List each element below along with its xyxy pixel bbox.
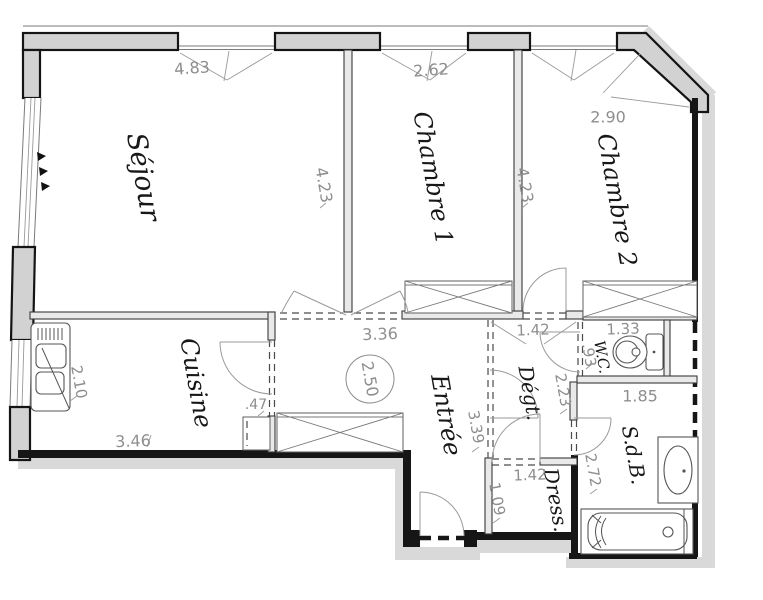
dim-sejour-width: 4.83 [174, 57, 211, 78]
wall-corridor-north [566, 311, 583, 319]
window-top-2 [380, 33, 468, 50]
window-top-1 [178, 33, 275, 50]
floor-plan-drawing: 2.50 Séjour Chambre 1 Chambre 2 Cuisine … [0, 0, 763, 600]
ceiling-height-badge: 2.50 [346, 355, 394, 403]
dim-sejour-height: 4.23 [312, 166, 337, 204]
wall-cuisine-east-stub [268, 312, 275, 340]
room-label-sejour: Séjour [120, 130, 166, 225]
exterior-walls-top [23, 26, 708, 112]
wall-sdb-left-lower [571, 455, 578, 557]
bathtub-icon [581, 509, 693, 554]
door-dress [492, 414, 540, 462]
dim-wc-height: .93 [578, 342, 600, 369]
wall-corner-leg [23, 50, 40, 98]
closet-entree-icon [277, 413, 403, 452]
window-left-1 [18, 98, 41, 247]
entry-door-stub [411, 530, 420, 547]
room-label-degt: Dégt. [513, 363, 546, 422]
dim-chambre1-width: 2.62 [413, 59, 450, 80]
dim-sdb-width: 1.85 [622, 387, 658, 406]
closet-chambre1-icon [405, 281, 512, 313]
wall-dress-north [540, 458, 577, 465]
toilet-icon [613, 334, 663, 370]
washbasin-icon [658, 437, 698, 503]
wall-entry-west [403, 452, 411, 547]
room-label-sdb: S.d.B. [617, 424, 651, 487]
window-left-2 [10, 340, 32, 407]
wall-wc-shaft [664, 320, 670, 378]
dim-hall-width: 3.36 [362, 324, 398, 344]
wall-pier [468, 33, 530, 50]
room-label-chambre2: Chambre 2 [592, 131, 643, 269]
wall-pier [23, 33, 178, 50]
door-sejour [281, 291, 346, 315]
dim-degt-width: 1.42 [516, 320, 550, 339]
closet-chambre2-icon [583, 281, 697, 317]
room-label-entree: Entrée [425, 371, 467, 458]
wall-cuisine-north [30, 312, 275, 319]
wall-sejour-chambre1 [344, 50, 352, 312]
room-label-chambre1: Chambre 1 [408, 109, 459, 247]
dim-wc-width: 1.33 [606, 319, 640, 338]
dim-sdb-height: 2.72 [581, 452, 605, 488]
kitchen-duct-box [243, 417, 270, 450]
door-chambre1 [351, 291, 408, 315]
room-label-cuisine: Cuisine [174, 336, 217, 431]
window-tick-marks [37, 152, 50, 191]
window-top-3 [530, 33, 617, 50]
door-sdb [574, 418, 611, 455]
kitchen-sink-icon [31, 323, 70, 411]
dim-entree-height: 3.39 [464, 409, 488, 445]
wall-wc-sdb [577, 376, 697, 383]
dim-cuisine-width: 3.46 [115, 431, 151, 451]
dim-duct-width: .47 [245, 397, 267, 413]
door-chambre2 [523, 268, 566, 311]
wall-pier [275, 33, 380, 50]
dim-dress-width: 1.42 [513, 465, 547, 484]
floor-plan-page: 2.50 Séjour Chambre 1 Chambre 2 Cuisine … [0, 0, 763, 600]
door-cuisine [220, 342, 272, 394]
dim-chambre2-width: 2.90 [590, 108, 626, 127]
dim-cuisine-height: 2.10 [67, 364, 91, 400]
dim-degt-height: 2.23 [551, 372, 575, 408]
door-entrance [420, 492, 464, 536]
